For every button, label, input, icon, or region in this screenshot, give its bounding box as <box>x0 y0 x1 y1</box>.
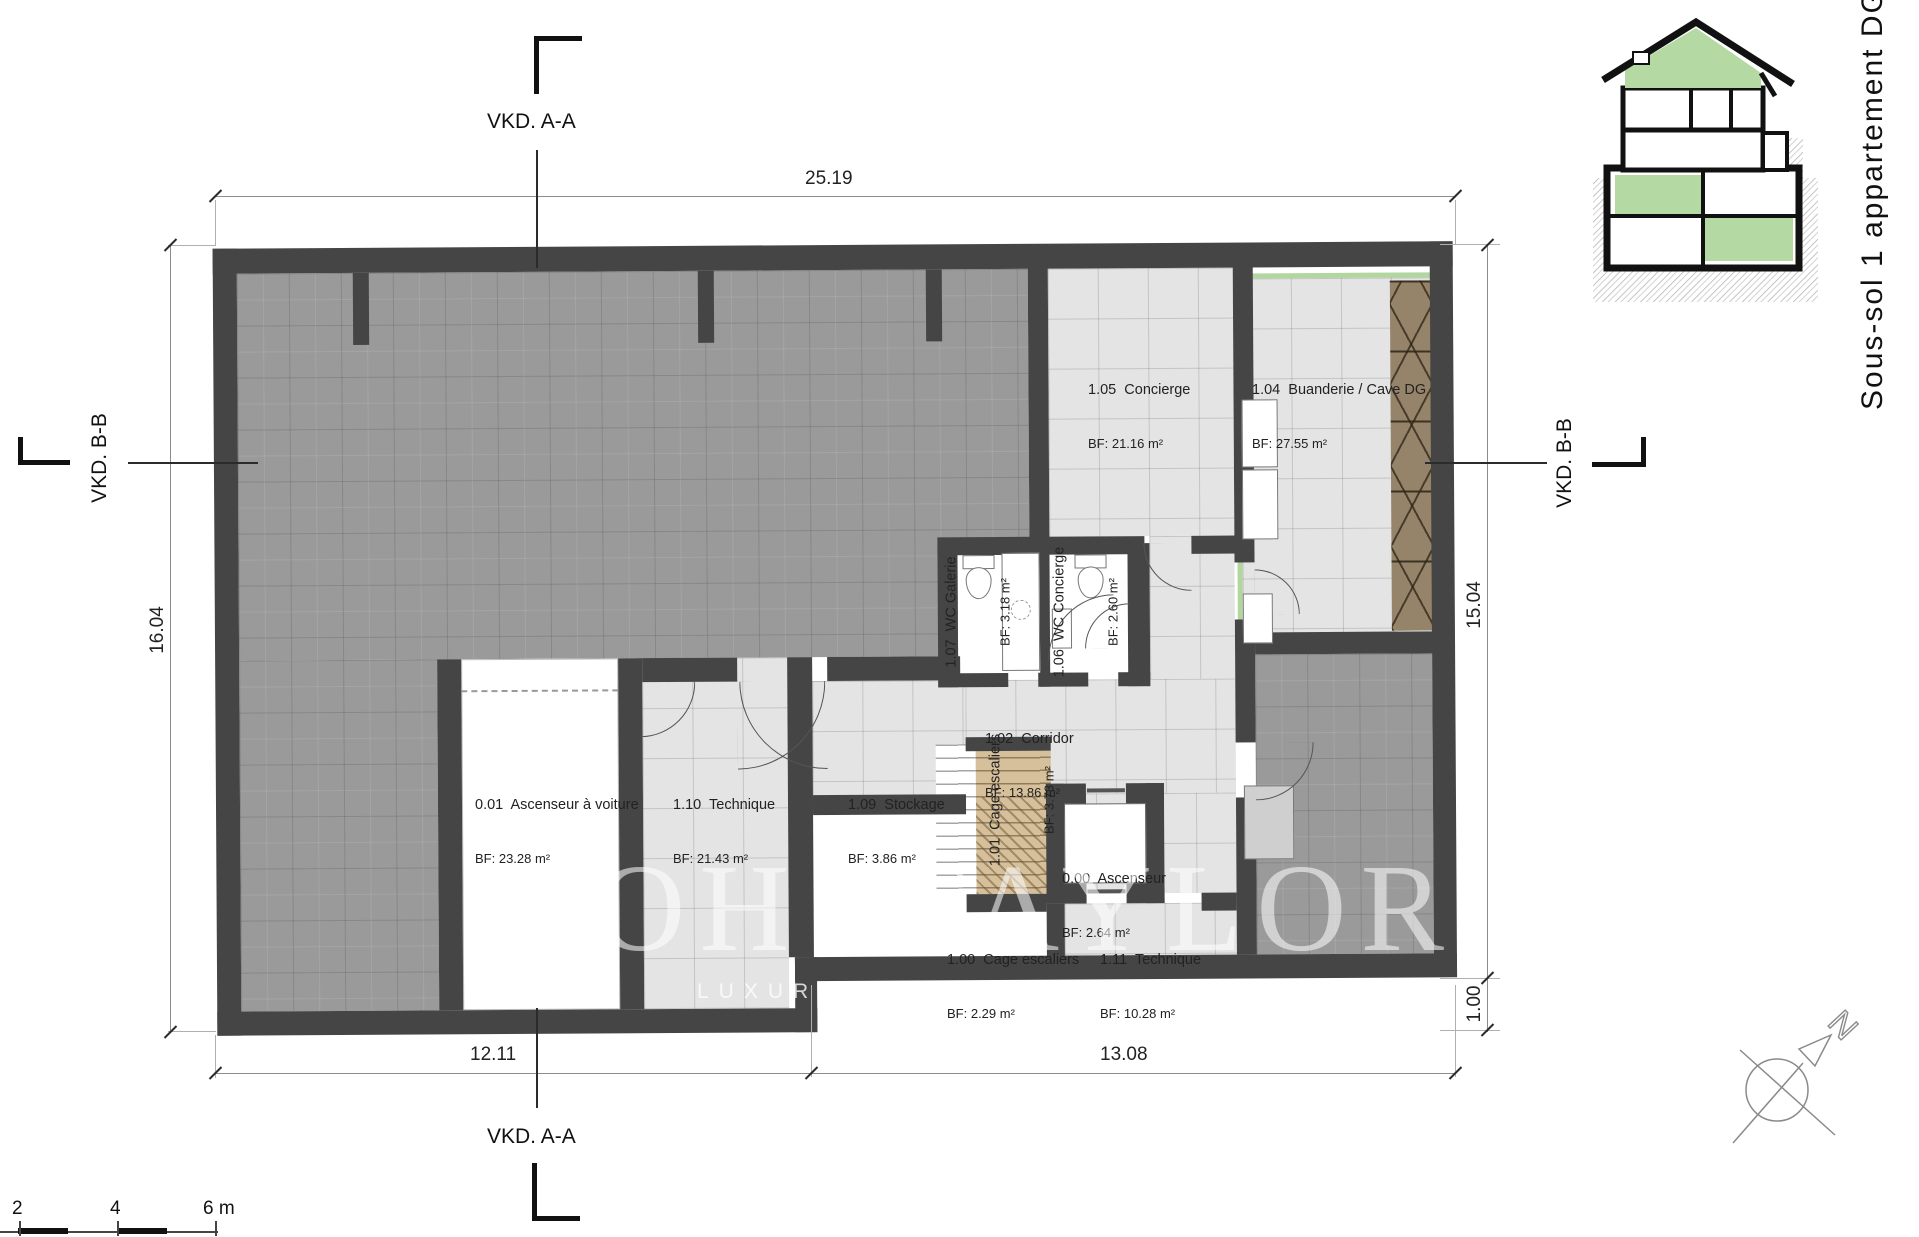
room-area: BF: 27.55 m² <box>1252 436 1426 452</box>
section-label-left: VKD. B-B <box>88 413 112 503</box>
room-label-corridor: 1.02 Corridor BF: 13.86 m² <box>985 694 1074 837</box>
dim-top: 25.19 <box>805 168 853 190</box>
room-label-buanderie: 1.04 Buanderie / Cave DG BF: 27.55 m² <box>1252 345 1426 488</box>
scale-label-2: 2 <box>12 1198 23 1220</box>
watermark-tagline: LUXURY <box>697 980 842 1004</box>
scale-segment <box>117 1228 167 1234</box>
room-area: BF: 2.60 m² <box>1105 547 1121 678</box>
wall-stub <box>926 269 942 341</box>
room-name: 1.05 Concierge <box>1088 381 1190 399</box>
room-label-wc-concierge: 1.06 WC Concierge BF: 2.60 m² <box>1014 547 1157 678</box>
section-line-left <box>128 462 258 464</box>
wall-outer-top <box>213 241 1453 274</box>
section-label-right: VKD. B-B <box>1553 418 1577 508</box>
dim-bottom-left: 12.11 <box>470 1044 516 1066</box>
witness-line <box>215 200 216 245</box>
floor-plan-sheet: 0.01 Ascenseur à voiture BF: 23.28 m² 1.… <box>0 0 1919 1237</box>
wall-outer-bottom-left <box>217 1008 817 1036</box>
dim-right-main: 15.04 <box>1464 581 1486 629</box>
witness-line <box>168 1031 216 1032</box>
scale-segment <box>18 1228 68 1234</box>
dim-line-right <box>1487 245 1488 1032</box>
section-label-top: VKD. A-A <box>487 110 576 134</box>
room-name: 1.02 Corridor <box>985 730 1074 748</box>
room-area: BF: 10.28 m² <box>1100 1006 1201 1022</box>
dim-line-top <box>215 196 1455 197</box>
witness-line <box>1455 985 1456 1077</box>
room-area: BF: 21.16 m² <box>1088 436 1190 452</box>
dim-line-left <box>170 245 171 1032</box>
room-area: BF: 13.86 m² <box>985 785 1074 801</box>
north-arrow: N <box>1715 995 1875 1155</box>
room-name: 1.07 WC Galerie <box>943 556 961 667</box>
room-label-concierge: 1.05 Concierge BF: 21.16 m² <box>1088 345 1190 488</box>
scale-bar: 2 4 6 m <box>0 1195 260 1237</box>
section-bracket-bottom <box>532 1163 580 1221</box>
wall-concierge-wc-b <box>1191 536 1239 554</box>
room-name: 1.04 Buanderie / Cave DG <box>1252 381 1426 399</box>
scale-tick <box>215 1221 217 1236</box>
section-line-top <box>536 150 538 268</box>
witness-line <box>1440 244 1500 245</box>
room-area: BF: 3.18 m² <box>997 556 1013 667</box>
section-bracket-right <box>1592 437 1646 467</box>
witness-line <box>1440 1030 1500 1031</box>
floor-garage-left-strip <box>239 659 439 1011</box>
wall-buanderie-south <box>1255 631 1437 654</box>
scale-tick <box>19 1221 21 1236</box>
wall-carlift-left <box>437 659 463 1010</box>
room-name: 1.10 Technique <box>673 796 775 814</box>
witness-line <box>168 245 216 246</box>
dim-line-bottom <box>215 1073 1455 1074</box>
building-section-icon <box>1593 18 1818 308</box>
section-bracket-top <box>534 36 582 94</box>
wall-stub <box>353 273 369 345</box>
room-area: BF: 2.29 m² <box>947 1006 1079 1022</box>
scale-label-6m: 6 m <box>203 1198 235 1220</box>
scale-tick <box>117 1221 119 1236</box>
witness-line <box>1455 200 1456 245</box>
dim-left: 16.04 <box>147 606 169 654</box>
dim-right-small: 1.00 <box>1464 986 1486 1023</box>
watermark-brand: OH TAYLOR <box>595 838 1458 981</box>
north-letter: N <box>1820 1004 1865 1048</box>
wall-outer-left <box>213 249 242 1036</box>
room-name: 1.06 WC Concierge <box>1051 547 1069 678</box>
wall-stub <box>698 271 714 343</box>
wall-garage-corridor-a <box>642 658 737 683</box>
scale-label-4: 4 <box>110 1198 121 1220</box>
section-bracket-left <box>18 437 70 465</box>
section-label-bottom: VKD. A-A <box>487 1125 576 1149</box>
section-line-bottom <box>536 1008 538 1108</box>
room-name: 1.09 Stockage <box>848 796 945 814</box>
wall-garage-concierge <box>1028 261 1050 551</box>
sheet-title: Sous-sol 1 appartement DG <box>1856 8 1890 410</box>
room-name: 0.01 Ascenseur à voiture <box>475 796 639 814</box>
section-line-right <box>1425 462 1547 464</box>
